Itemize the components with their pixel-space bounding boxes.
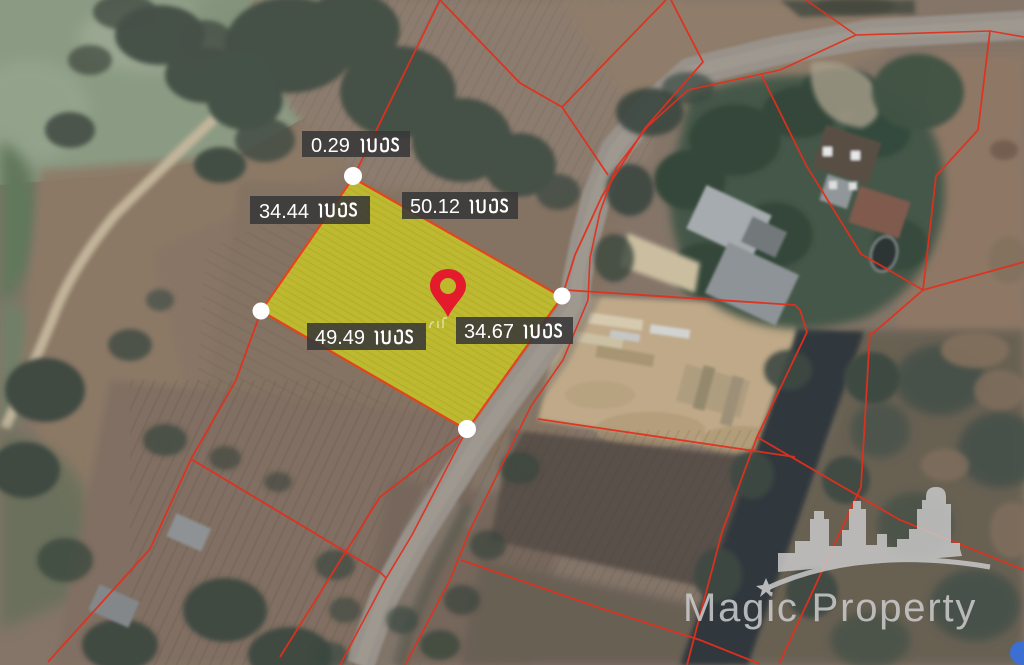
svg-text:50.12: 50.12 [410, 196, 460, 218]
svg-text:34.67: 34.67 [464, 321, 514, 343]
svg-text:0.29: 0.29 [311, 135, 350, 157]
svg-text:49.49: 49.49 [315, 327, 365, 349]
svg-text:Magic Property: Magic Property [683, 586, 977, 630]
svg-text:34.44: 34.44 [259, 201, 309, 223]
